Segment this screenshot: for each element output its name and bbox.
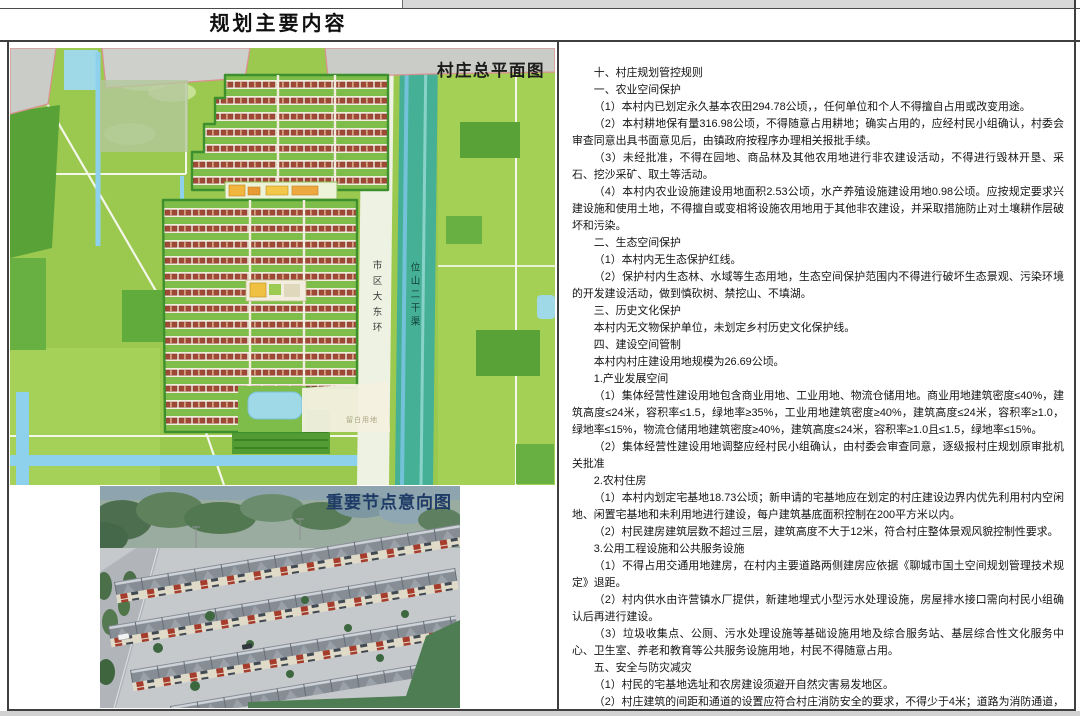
rule-paragraph: （3）未经批准，不得在园地、商品林及其他农用地进行非农建设活动，不得进行毁林开垦… (572, 150, 1064, 184)
page-edge-shadow (0, 711, 1080, 716)
rule-paragraph: 二、生态空间保护 (572, 235, 1064, 252)
rules-paragraphs: 十、村庄规划管控规则一、农业空间保护（1）本村内已划定永久基本农田294.78公… (572, 65, 1064, 709)
rule-paragraph: （2）村内供水由许营镇水厂提供，新建地埋式小型污水处理设施，房屋排水接口需向村民… (572, 592, 1064, 626)
rule-paragraph: 四、建设空间管制 (572, 337, 1064, 354)
table-border-divider (557, 40, 559, 710)
reserved-land: 留白用地 (302, 382, 390, 432)
village-master-plan-map: 留白用地 村庄总平面图 市区大东环 位山二干渠 (10, 48, 555, 485)
rule-paragraph: （4）本村内农业设施建设用地面积2.53公顷，水产养殖设施建设用地0.98公顷。… (572, 184, 1064, 235)
rule-paragraph: 十、村庄规划管控规则 (572, 65, 1064, 82)
rule-paragraph: 2.农村住房 (572, 473, 1064, 490)
village-committee-plaza (246, 280, 306, 301)
rule-paragraph: （2）村民建房建筑层数不超过三层，建筑高度不大于12米，符合村庄整体景观风貌控制… (572, 524, 1064, 541)
node-concept-image: 重要节点意向图 (100, 486, 460, 708)
village-pond (248, 392, 302, 419)
planning-sheet: 规划主要内容 (0, 0, 1080, 716)
rule-paragraph: 1.产业发展空间 (572, 371, 1064, 388)
rule-paragraph: 本村内村庄建设用地规模为26.69公顷。 (572, 354, 1064, 371)
canal-label: 位山二干渠 (409, 261, 421, 329)
reserved-land-label: 留白用地 (346, 415, 378, 424)
rule-paragraph: 三、历史文化保护 (572, 303, 1064, 320)
rule-paragraph: 五、安全与防灾减灾 (572, 660, 1064, 677)
public-buildings (225, 182, 337, 199)
rule-paragraph: 一、农业空间保护 (572, 82, 1064, 99)
rule-paragraph: 本村内无文物保护单位，未划定乡村历史文化保护线。 (572, 320, 1064, 337)
rule-paragraph: （2）保护村内生态林、水域等生态用地，生态空间保护范围内不得进行破坏生态景观、污… (572, 269, 1064, 303)
rule-paragraph: （1）本村内划定宅基地18.73公顷；新申请的宅基地应在划定的村庄建设边界内优先… (572, 490, 1064, 524)
road-label: 市区大东环 (371, 259, 383, 337)
pond-east (537, 295, 555, 319)
west-channel (16, 392, 29, 485)
master-plan-title: 村庄总平面图 (437, 60, 545, 80)
rule-paragraph: （1）村民的宅基地选址和农房建设须避开自然灾害易发地区。 (572, 677, 1064, 694)
pond-northwest (64, 50, 98, 90)
rules-text-panel: 十、村庄规划管控规则一、农业空间保护（1）本村内已划定永久基本农田294.78公… (559, 41, 1074, 709)
page-title: 规划主要内容 (0, 9, 557, 40)
rule-paragraph: （3）垃圾收集点、公厕、污水处理设施等基础设施用地及综合服务站、基层综合性文化服… (572, 626, 1064, 660)
rule-paragraph: （1）不得占用交通用地建房，在村内主要道路两侧建房应依据《聊城市国土空间规划管理… (572, 558, 1064, 592)
top-divider-line (402, 0, 403, 8)
rule-paragraph: （1）集体经营性建设用地包含商业用地、工业用地、物流仓储用地。商业用地建筑密度≤… (572, 388, 1064, 439)
south-channel (10, 455, 358, 466)
rule-paragraph: （1）本村内无生态保护红线。 (572, 252, 1064, 269)
rule-paragraph: （2）集体经营性建设用地调整应经村民小组确认，由村委会审查同意，逐级报村庄规划原… (572, 439, 1064, 473)
top-table-remnant (402, 0, 1075, 8)
table-border-left (7, 40, 9, 710)
rule-paragraph: （2）本村耕地保有量316.98公顷，不得随意占用耕地；确实占用的，应经村民小组… (572, 116, 1064, 150)
table-border-right (1074, 0, 1076, 710)
rule-paragraph: （1）本村内已划定永久基本农田294.78公顷，，任何单位和个人不得擅自占用或改… (572, 99, 1064, 116)
rule-paragraph: 3.公用工程设施和公共服务设施 (572, 541, 1064, 558)
node-view-title: 重要节点意向图 (326, 492, 452, 512)
rule-paragraph: （2）村庄建筑的间距和通道的设置应符合村庄消防安全的要求，不得少于4米；道路为消… (572, 694, 1064, 709)
